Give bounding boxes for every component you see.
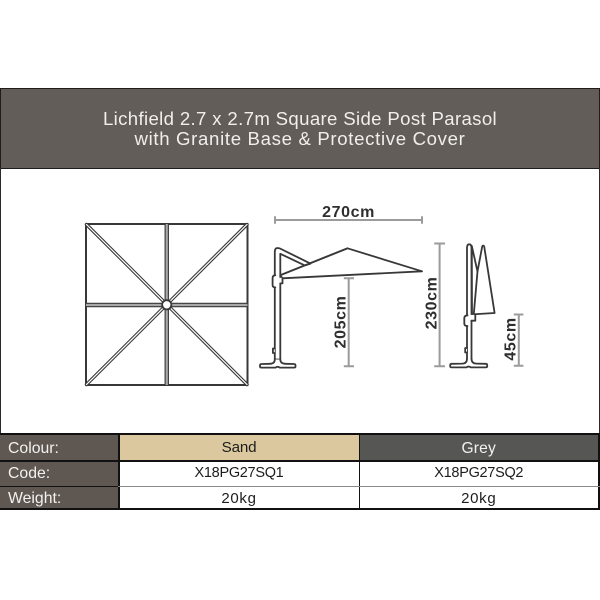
svg-text:205cm: 205cm [333, 296, 350, 349]
svg-text:45cm: 45cm [503, 317, 520, 360]
svg-text:230cm: 230cm [423, 277, 440, 330]
svg-text:270cm: 270cm [322, 204, 375, 221]
